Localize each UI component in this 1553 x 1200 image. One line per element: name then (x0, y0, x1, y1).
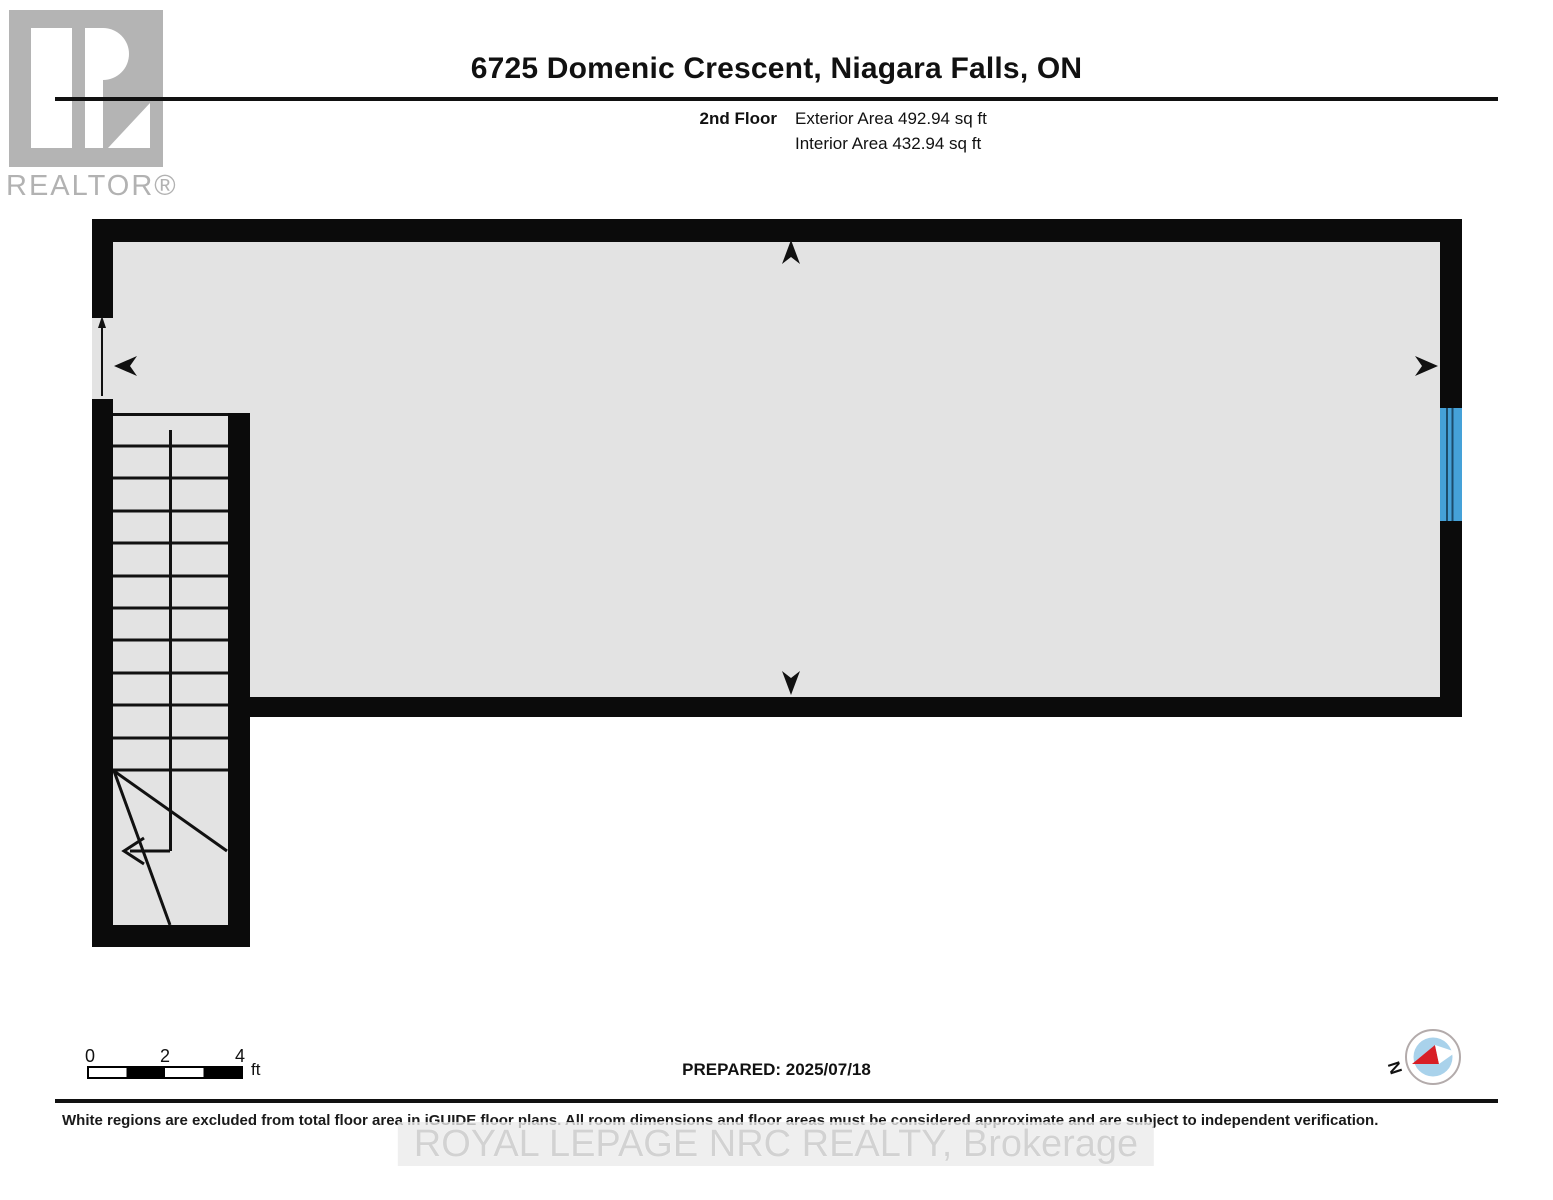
compass-icon (1406, 1030, 1460, 1084)
top-wall (92, 219, 1462, 242)
window-glass (1440, 408, 1462, 521)
window (1440, 408, 1462, 521)
right-wall-lower (1440, 521, 1462, 717)
brokerage-watermark: ROYAL LEPAGE NRC REALTY, Brokerage (398, 1122, 1154, 1166)
header-divider (55, 97, 1498, 101)
stairwell-bottom-wall (92, 925, 250, 947)
stairwell-right-wall (228, 413, 250, 947)
realtor-logo-text: REALTOR® (6, 170, 178, 203)
scale-bar-segment (127, 1067, 166, 1078)
realtor-logo-icon (0, 0, 180, 175)
right-wall-upper (1440, 219, 1462, 408)
footer-divider (55, 1099, 1498, 1103)
scale-bar-segment (204, 1067, 243, 1078)
realtor-logo-r-stem (85, 28, 103, 148)
left-wall-upper (92, 219, 113, 318)
room-bottom-wall (228, 697, 1462, 717)
realtor-logo-r-left-bar (31, 28, 72, 148)
floor-areas (92, 242, 1440, 925)
floor-plan (0, 0, 1553, 1200)
attic-floor (113, 242, 1440, 697)
scale-bar (88, 1067, 242, 1078)
left-wall-lower (92, 399, 113, 947)
